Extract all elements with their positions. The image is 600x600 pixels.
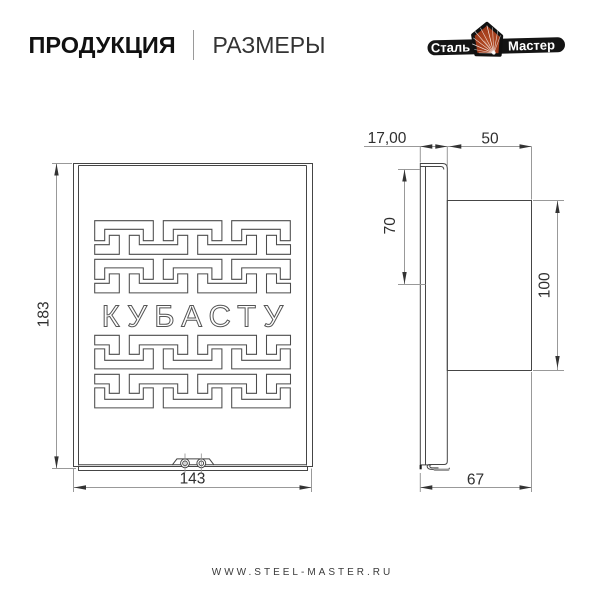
svg-text:Мастер: Мастер [508, 37, 555, 53]
svg-text:183: 183 [36, 301, 53, 327]
svg-text:70: 70 [382, 217, 399, 235]
svg-text:50: 50 [481, 131, 499, 148]
svg-text:РАЗМЕРЫ: РАЗМЕРЫ [213, 32, 326, 58]
svg-text:Сталь: Сталь [431, 39, 471, 55]
svg-text:КУБАСТУ: КУБАСТУ [102, 299, 291, 334]
svg-text:100: 100 [537, 272, 554, 298]
svg-text:17,00: 17,00 [368, 130, 407, 147]
svg-text:WWW.STEEL-MASTER.RU: WWW.STEEL-MASTER.RU [212, 567, 393, 578]
svg-text:67: 67 [467, 472, 484, 489]
svg-text:143: 143 [180, 471, 206, 488]
svg-text:ПРОДУКЦИЯ: ПРОДУКЦИЯ [29, 32, 176, 58]
